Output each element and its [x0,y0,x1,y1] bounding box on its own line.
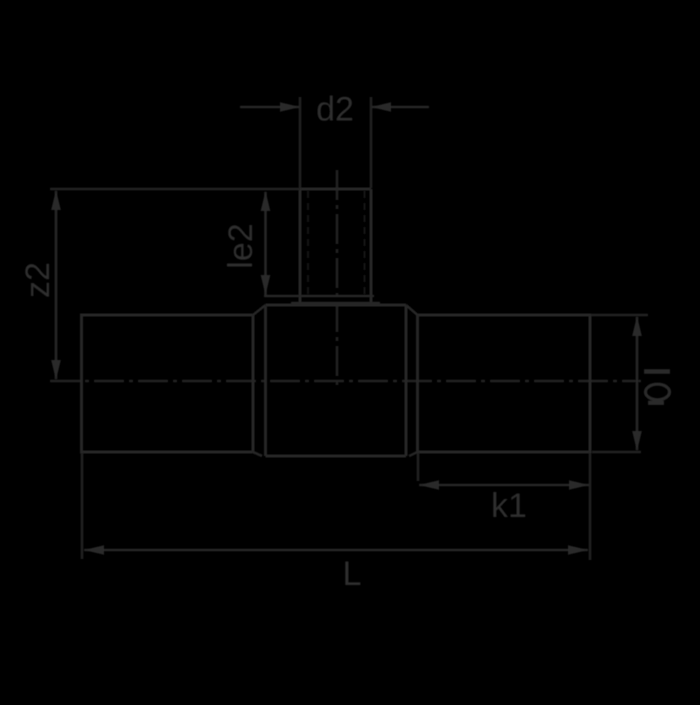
svg-text:le2: le2 [222,223,260,268]
svg-text:z2: z2 [19,262,57,298]
svg-text:k1: k1 [491,487,527,525]
svg-text:d2: d2 [316,91,354,129]
svg-text:L: L [343,555,362,593]
